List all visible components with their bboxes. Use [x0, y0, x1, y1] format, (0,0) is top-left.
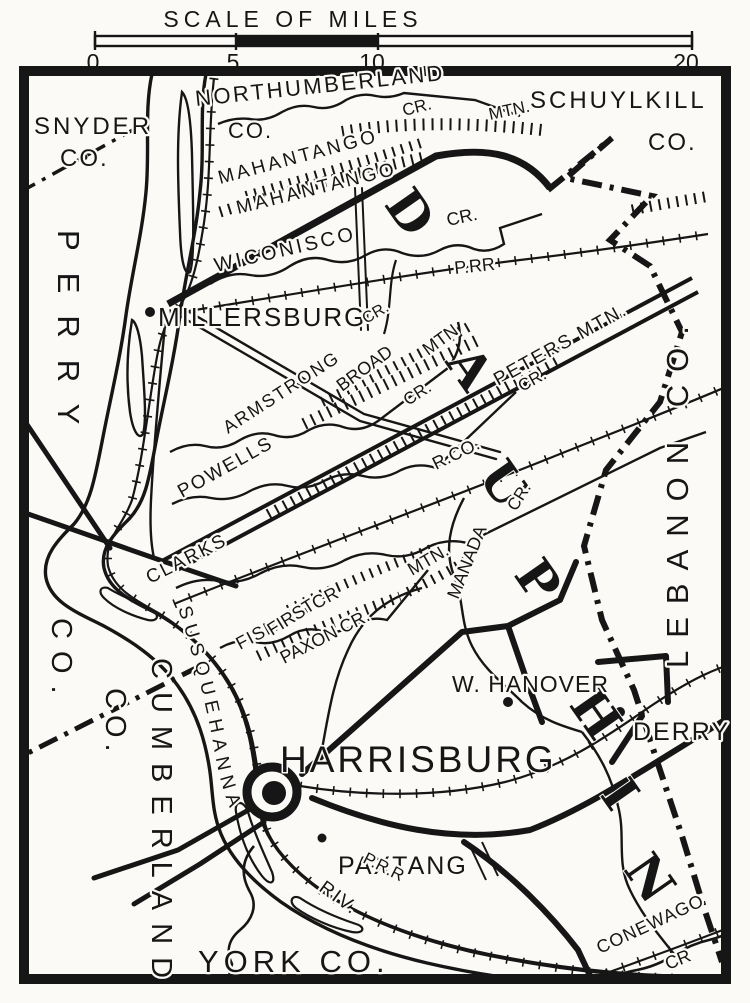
label-cumberland: CUMBERLAND [145, 658, 177, 991]
boundary-east-dashdot [548, 138, 722, 962]
scale-bar-filled-segment [236, 36, 378, 46]
label-cumberland-co: CO. [99, 688, 131, 758]
label-peters-mtn: PETERS MTN. [490, 299, 631, 390]
scale-bar-outline [95, 36, 692, 46]
town-dot-paxtang [318, 834, 327, 843]
label-riv: RIV. [315, 877, 362, 919]
label-powells: POWELLS [174, 433, 277, 503]
label-harrisburg: HARRISBURG [280, 739, 557, 780]
label-perry-co: CO. [45, 618, 77, 706]
county-map-svg: SCALE OF MILES 0 5 10 20 [0, 0, 750, 1003]
label-schuylkill-co: CO. [648, 129, 697, 156]
label-wiconisco-cr: CR. [445, 204, 479, 230]
label-derry: DERRY [633, 718, 730, 746]
river-island [128, 320, 145, 436]
label-mahantango-mtn: MTN. [487, 97, 532, 124]
label-millersburg: MILLERSBURG [158, 302, 366, 332]
label-prr-north: P.RR [453, 254, 496, 278]
label-york-co: YORK CO. [198, 944, 390, 979]
scale-title: SCALE OF MILES [163, 6, 422, 32]
label-dauphin: D A U P H I N [373, 177, 687, 913]
label-snyder: SNYDER [34, 113, 152, 140]
dauphin-letter-u: U [467, 449, 540, 519]
road-south-branch [464, 842, 592, 980]
river-island [101, 588, 157, 621]
town-dot-millersburg [145, 307, 155, 317]
map-labels: SNYDER CO. NORTHUMBERLAND CO. SCHUYLKILL… [34, 60, 730, 991]
label-mahantango-cr: CR. [400, 94, 433, 120]
town-dot-w-hanover [503, 697, 513, 707]
label-snyder-co: CO. [60, 145, 109, 172]
dauphin-letter-p: P [503, 548, 573, 613]
map-page: SCALE OF MILES 0 5 10 20 [0, 0, 750, 1003]
harrisburg-marker-inner [262, 781, 286, 805]
creek-rattling [384, 260, 396, 334]
label-lebanon-co: LEBANON CO. [660, 313, 695, 668]
label-northumberland-co: CO. [228, 118, 273, 143]
label-conewago-cr: CR [662, 945, 694, 973]
label-schuylkill: SCHUYLKILL [530, 87, 707, 114]
label-w-hanover: W. HANOVER [452, 671, 609, 697]
creek-paxon [320, 588, 422, 760]
label-perry: PERRY [51, 230, 86, 446]
